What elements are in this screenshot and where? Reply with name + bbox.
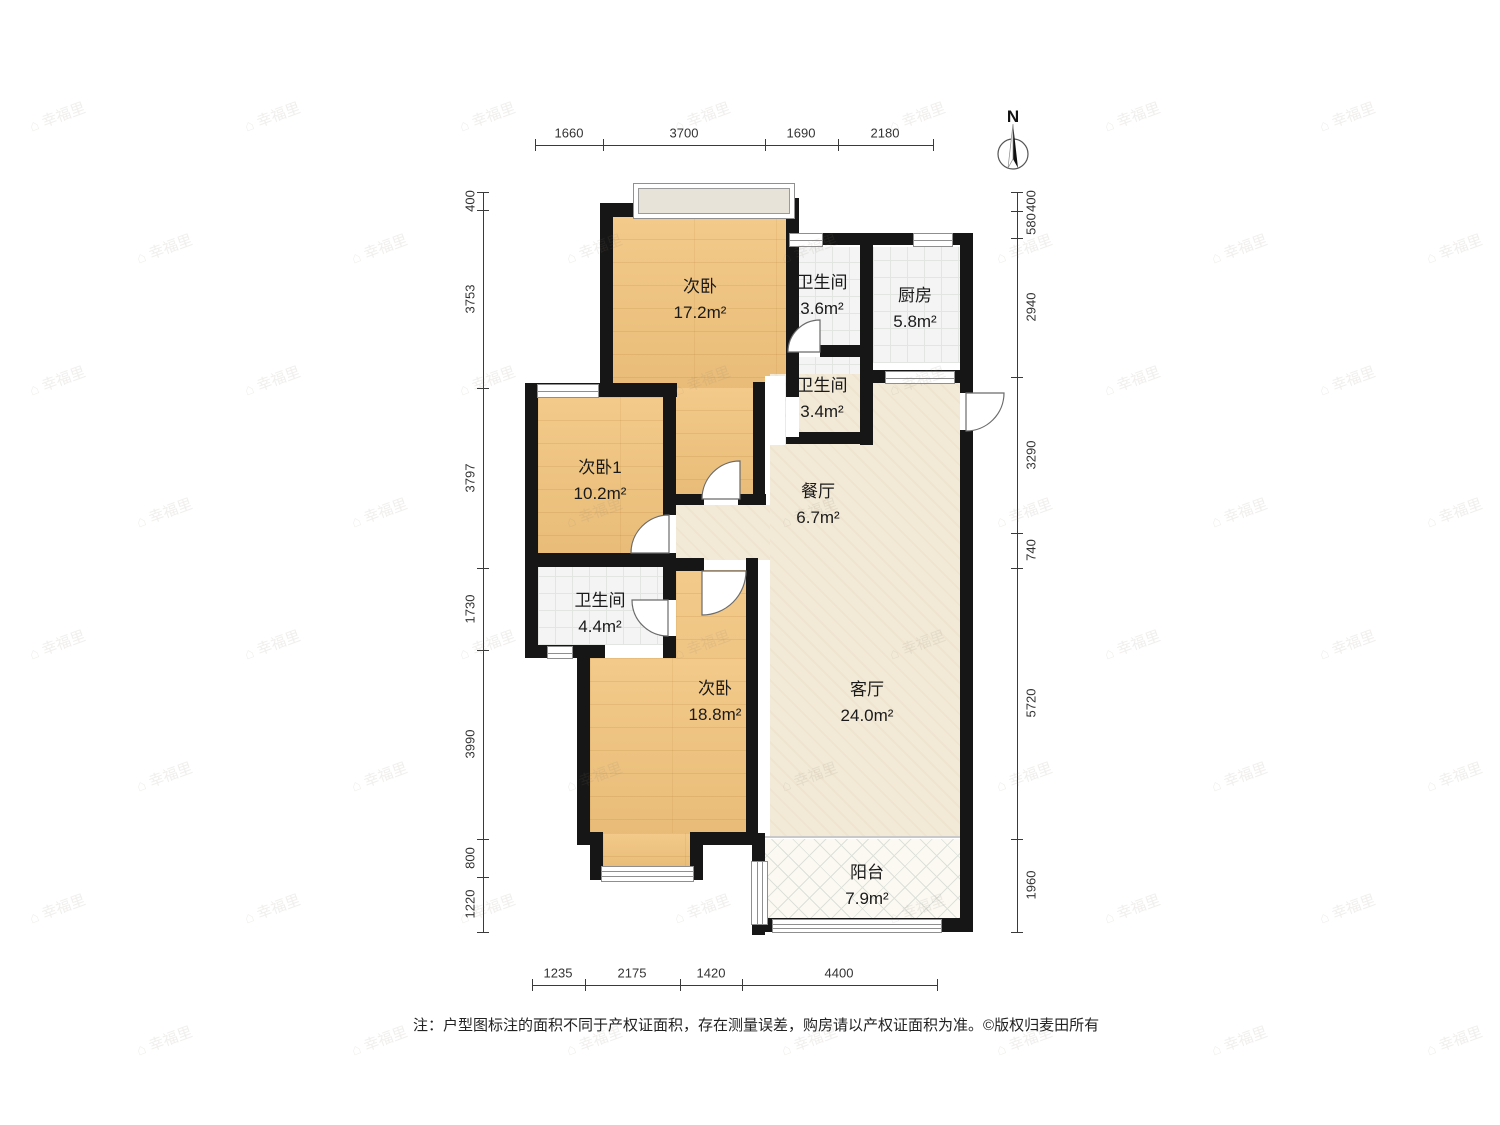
room-name: 客厅 [841,677,894,703]
footer: 注：户型图标注的面积不同于产权证面积，存在测量误差，购房请以产权证面积为准。 ©… [413,1014,1089,1035]
room-label-bathroom-left: 卫生间 4.4m² [575,588,626,640]
room-area: 17.2m² [674,300,727,326]
room-label-kitchen: 厨房 5.8m² [893,283,936,335]
room-name: 厨房 [893,283,936,309]
room-label-bathroom-top: 卫生间 3.6m² [797,270,848,322]
room-label-living: 客厅 24.0m² [841,677,894,729]
north-compass: N [985,106,1041,186]
room-label-balcony: 阳台 7.9m² [845,860,888,912]
door-arc [966,393,1004,431]
door-arc [632,600,668,636]
room-name: 次卧 [674,274,727,300]
room-label-bedroom-bottom: 次卧 18.8m² [689,676,742,728]
door-arc [702,461,740,499]
north-label: N [1007,107,1019,126]
room-area: 3.6m² [797,296,848,322]
door-arc [702,571,746,615]
room-name: 餐厅 [796,479,839,505]
room-name: 次卧1 [574,455,627,481]
door-arc [631,515,669,553]
room-area: 6.7m² [796,505,839,531]
room-name: 卫生间 [797,373,848,399]
room-area: 24.0m² [841,703,894,729]
room-area: 7.9m² [845,886,888,912]
copyright: ©版权归麦田所有 [983,1014,1099,1035]
room-name: 卫生间 [575,588,626,614]
door-arcs [0,0,1500,1125]
room-area: 18.8m² [689,702,742,728]
floorplan-canvas: 次卧 17.2m² 卫生间 3.6m² 厨房 5.8m² 卫生间 3.4m² 次… [0,0,1500,1125]
room-area: 5.8m² [893,309,936,335]
room-label-bathroom-mid: 卫生间 3.4m² [797,373,848,425]
room-area: 3.4m² [797,399,848,425]
room-area: 10.2m² [574,481,627,507]
room-name: 次卧 [689,676,742,702]
door-arc [788,320,820,352]
room-label-bedroom-top: 次卧 17.2m² [674,274,727,326]
room-area: 4.4m² [575,614,626,640]
footer-note: 注：户型图标注的面积不同于产权证面积，存在测量误差，购房请以产权证面积为准。 [413,1014,983,1035]
north-arrow-icon: N [985,106,1041,186]
room-name: 卫生间 [797,270,848,296]
room-label-bedroom-left: 次卧1 10.2m² [574,455,627,507]
room-name: 阳台 [845,860,888,886]
room-label-dining: 餐厅 6.7m² [796,479,839,531]
